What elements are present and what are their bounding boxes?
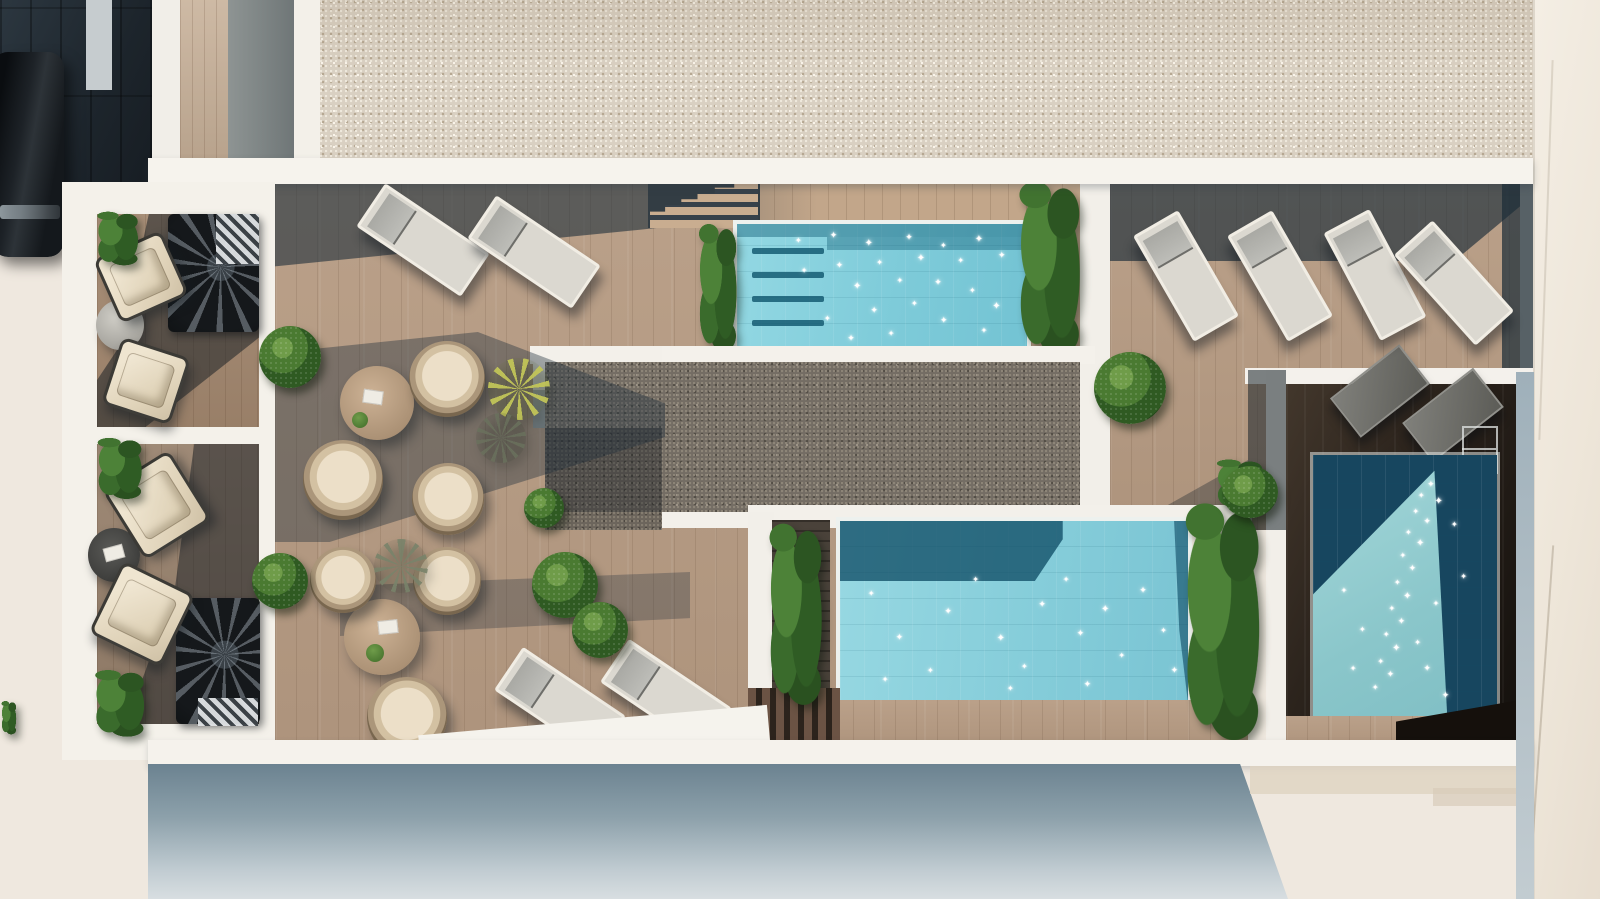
rattan-chair [409, 341, 485, 417]
lounger-headrest [1404, 231, 1456, 282]
lounger-headrest [1142, 221, 1193, 269]
white-parapet [148, 740, 1533, 766]
fan-palm [476, 413, 526, 463]
stair-treads [198, 698, 258, 726]
parked-car [0, 52, 64, 257]
top-grey-strip [228, 0, 294, 164]
shrub [259, 326, 321, 388]
pool-step [752, 296, 825, 302]
lounger-headrest [1236, 221, 1287, 269]
lounger-headrest [1333, 219, 1384, 266]
planter-row [1013, 176, 1087, 364]
shrub [524, 488, 564, 528]
right-building-wall [1533, 0, 1600, 899]
top-white-wall-strip-2 [294, 0, 320, 164]
table-plant [366, 644, 384, 662]
gravel-roof [320, 0, 1533, 162]
shrub [572, 602, 628, 658]
planter-row [764, 518, 828, 714]
shrub [252, 553, 308, 609]
street-plant [0, 700, 18, 736]
potted-plant [90, 668, 150, 740]
lower-pool: ✦✦✦✦✦✦✦✦✦✦✦✦✦✦✦✦✦✦ [840, 521, 1188, 703]
book [377, 619, 398, 635]
book [362, 389, 384, 406]
rattan-chair [310, 547, 376, 613]
shrub [1222, 466, 1278, 518]
pool-step [752, 248, 825, 254]
lounger-headrest [611, 649, 661, 701]
pool-shadow-band [737, 224, 1027, 237]
planter-row [1178, 496, 1268, 752]
lounger-headrest [478, 205, 528, 257]
pool-step [752, 272, 825, 278]
rattan-chair [412, 463, 484, 535]
lounger-headrest [367, 193, 417, 245]
white-parapet [148, 158, 1533, 184]
wall-sliver [86, 0, 112, 90]
rattan-chair [303, 440, 383, 520]
pool-shadow-band [827, 237, 1027, 250]
street-pavement-column [0, 185, 64, 899]
upper-pool: ✦✦✦✦✦✦✦✦✦✦✦✦✦✦✦✦✦✦✦✦✦✦✦✦ [737, 224, 1027, 350]
stair-treads [216, 214, 259, 264]
potted-plant [93, 436, 147, 502]
rooftop-aerial-render: ✦✦✦✦✦✦✦✦✦✦✦✦✦✦✦✦✦✦✦✦✦✦✦✦ ✦✦✦✦✦✦✦✦✦✦✦✦✦✦✦… [0, 0, 1600, 899]
pool-step [752, 320, 825, 326]
wall-edge-shadow [1516, 372, 1534, 899]
lounger-headrest [505, 657, 555, 709]
potted-plant [93, 210, 143, 268]
table-plant [352, 412, 368, 428]
shrub [1094, 352, 1166, 424]
building-facade [148, 764, 1288, 899]
deck-edge-shadow [1502, 183, 1533, 372]
top-wood-strip [180, 0, 228, 164]
plunge-pool: ✦✦✦✦✦✦✦✦✦✦✦✦✦✦✦✦✦✦✦✦✦✦✦✦✦✦✦ [1313, 455, 1497, 718]
seat-cushion [106, 578, 178, 649]
ladder-rung [1462, 448, 1496, 450]
yucca-palm [488, 358, 550, 420]
seat-cushion [115, 351, 175, 409]
planter-row [695, 220, 741, 358]
car-windshield [0, 205, 60, 219]
top-white-wall-strip [152, 0, 180, 164]
fan-palm [374, 539, 428, 593]
